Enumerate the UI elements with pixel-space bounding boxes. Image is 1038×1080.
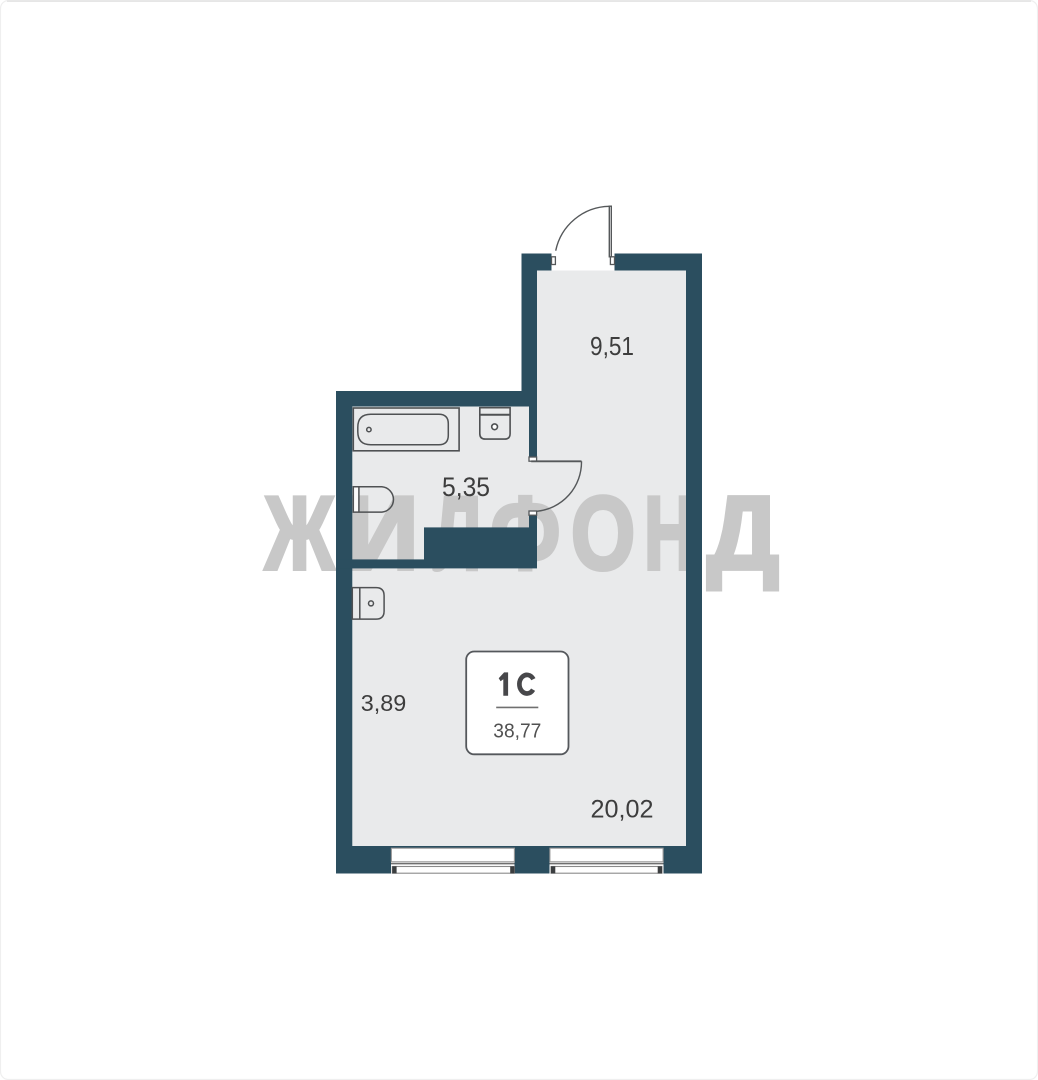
svg-text:9,51: 9,51 bbox=[590, 333, 634, 361]
svg-text:О: О bbox=[571, 476, 635, 592]
svg-text:38,77: 38,77 bbox=[493, 721, 541, 743]
svg-text:3,89: 3,89 bbox=[361, 690, 407, 716]
svg-text:Д: Д bbox=[707, 476, 779, 592]
svg-text:5,35: 5,35 bbox=[442, 472, 490, 502]
svg-text:Ж: Ж bbox=[264, 476, 334, 592]
svg-text:20,02: 20,02 bbox=[591, 796, 654, 824]
